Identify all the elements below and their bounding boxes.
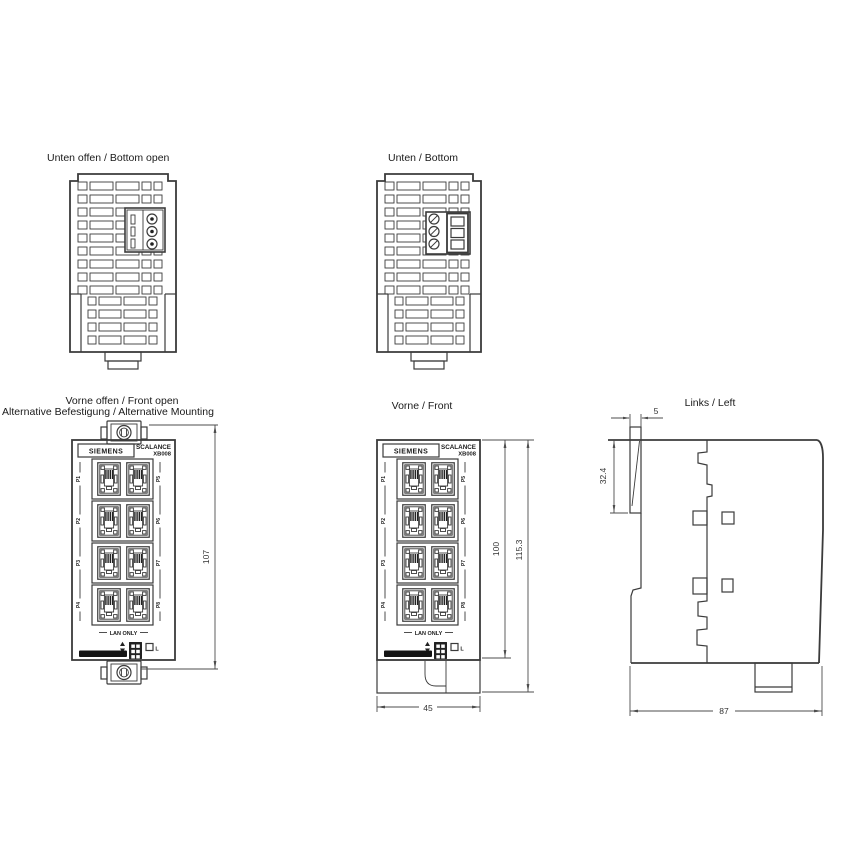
view-bottom-open-title: Unten offen / Bottom open [47, 152, 170, 164]
latch-window [693, 511, 707, 525]
dim-value: 107 [201, 550, 211, 564]
rj45-port [98, 463, 121, 496]
rj45-port [127, 589, 150, 622]
port-label: P3 [76, 560, 82, 566]
mounting-bracket-bottom [101, 661, 147, 684]
rj45-port [432, 589, 455, 622]
dim-value: 100 [491, 542, 501, 556]
port-label: P4 [381, 602, 387, 608]
latch-window [693, 578, 707, 594]
port-label: P1 [76, 476, 82, 482]
dimension-45: 45 [377, 696, 480, 713]
arrow-up-icon [120, 642, 125, 646]
product-line-label: SCALANCE [441, 444, 476, 451]
housing-outline [70, 174, 176, 352]
rj45-port [403, 463, 426, 496]
model-label: XB008 [458, 452, 477, 458]
dimension-115-3: 115.3 [482, 440, 534, 692]
port-label: P5 [156, 476, 162, 482]
rj45-port [403, 547, 426, 580]
port-label: P7 [461, 560, 467, 566]
port-label: P5 [461, 476, 467, 482]
dimension-32-4: 32.4 [598, 440, 628, 513]
brand-label: SIEMENS [89, 449, 123, 456]
housing-outline [377, 174, 481, 352]
arrow-up-icon [425, 642, 430, 646]
port-label: P2 [76, 518, 82, 524]
housing-parting-line [697, 440, 712, 663]
terminal-block [426, 212, 470, 254]
view-left: Links / Left [598, 397, 823, 716]
vent-grid [78, 182, 162, 344]
din-rail-foot [377, 660, 480, 693]
drawing-svg: Unten offen / Bottom open [0, 0, 850, 850]
view-bottom: Unten / Bottom [377, 152, 481, 369]
led-icon [451, 644, 458, 651]
view-front-open: Vorne offen / Front open Alternative Bef… [2, 395, 218, 684]
rj45-port [403, 589, 426, 622]
side-body [608, 440, 823, 663]
brand-label: SIEMENS [394, 449, 428, 456]
dim-value: 87 [719, 706, 729, 716]
port-label: P6 [156, 518, 162, 524]
view-front-open-title-2: Alternative Befestigung / Alternative Mo… [2, 406, 214, 418]
view-front: Vorne / Front SIEMENS SCALANCE XB008 P1 … [377, 400, 534, 713]
latch-window [722, 579, 733, 592]
din-rail-tab [105, 352, 141, 369]
port-label: P4 [76, 602, 82, 608]
rj45-port [98, 547, 121, 580]
view-bottom-open: Unten offen / Bottom open [47, 152, 176, 369]
dim-value: 32.4 [598, 467, 608, 484]
rj45-port [127, 547, 150, 580]
lan-only-label: LAN ONLY [415, 631, 443, 637]
technical-drawing-canvas: Unten offen / Bottom open [0, 0, 850, 850]
rj45-port [127, 505, 150, 538]
product-line-label: SCALANCE [136, 444, 171, 451]
view-bottom-title: Unten / Bottom [388, 152, 458, 164]
rj45-port [98, 505, 121, 538]
port-label: P8 [461, 602, 467, 608]
order-number-bar [384, 651, 432, 658]
rj45-port [432, 463, 455, 496]
din-rail-tab [411, 352, 447, 369]
port-area [397, 459, 458, 625]
port-label: P2 [381, 518, 387, 524]
dip-switch-icon [434, 642, 447, 659]
rj45-port [432, 505, 455, 538]
rj45-port [98, 589, 121, 622]
port-area [92, 459, 153, 625]
port-label: P3 [381, 560, 387, 566]
dim-value: 45 [423, 703, 433, 713]
model-label: XB008 [153, 452, 172, 458]
vent-grid [385, 182, 469, 344]
lan-only-label: LAN ONLY [110, 631, 138, 637]
dip-switch-icon [129, 642, 142, 659]
screw-icon [117, 666, 131, 680]
dimension-87: 87 [630, 666, 822, 716]
rj45-port [127, 463, 150, 496]
rj45-port [403, 505, 426, 538]
link-led-label: L [460, 647, 464, 653]
port-label: P8 [156, 602, 162, 608]
latch-window [722, 512, 734, 524]
link-led-label: L [155, 647, 159, 653]
dimension-100: 100 [482, 440, 534, 658]
port-label: P1 [381, 476, 387, 482]
order-number-bar [79, 651, 127, 658]
rj45-port [432, 547, 455, 580]
terminal-block [125, 208, 165, 252]
din-rail-foot [755, 663, 792, 692]
led-icon [146, 644, 153, 651]
port-label: P7 [156, 560, 162, 566]
view-front-title: Vorne / Front [392, 400, 453, 412]
view-left-title: Links / Left [685, 397, 736, 409]
dim-value: 5 [654, 406, 659, 416]
port-label: P6 [461, 518, 467, 524]
dim-value: 115.3 [514, 539, 524, 560]
screw-icon [117, 426, 131, 440]
dimension-5: 5 [611, 406, 663, 427]
